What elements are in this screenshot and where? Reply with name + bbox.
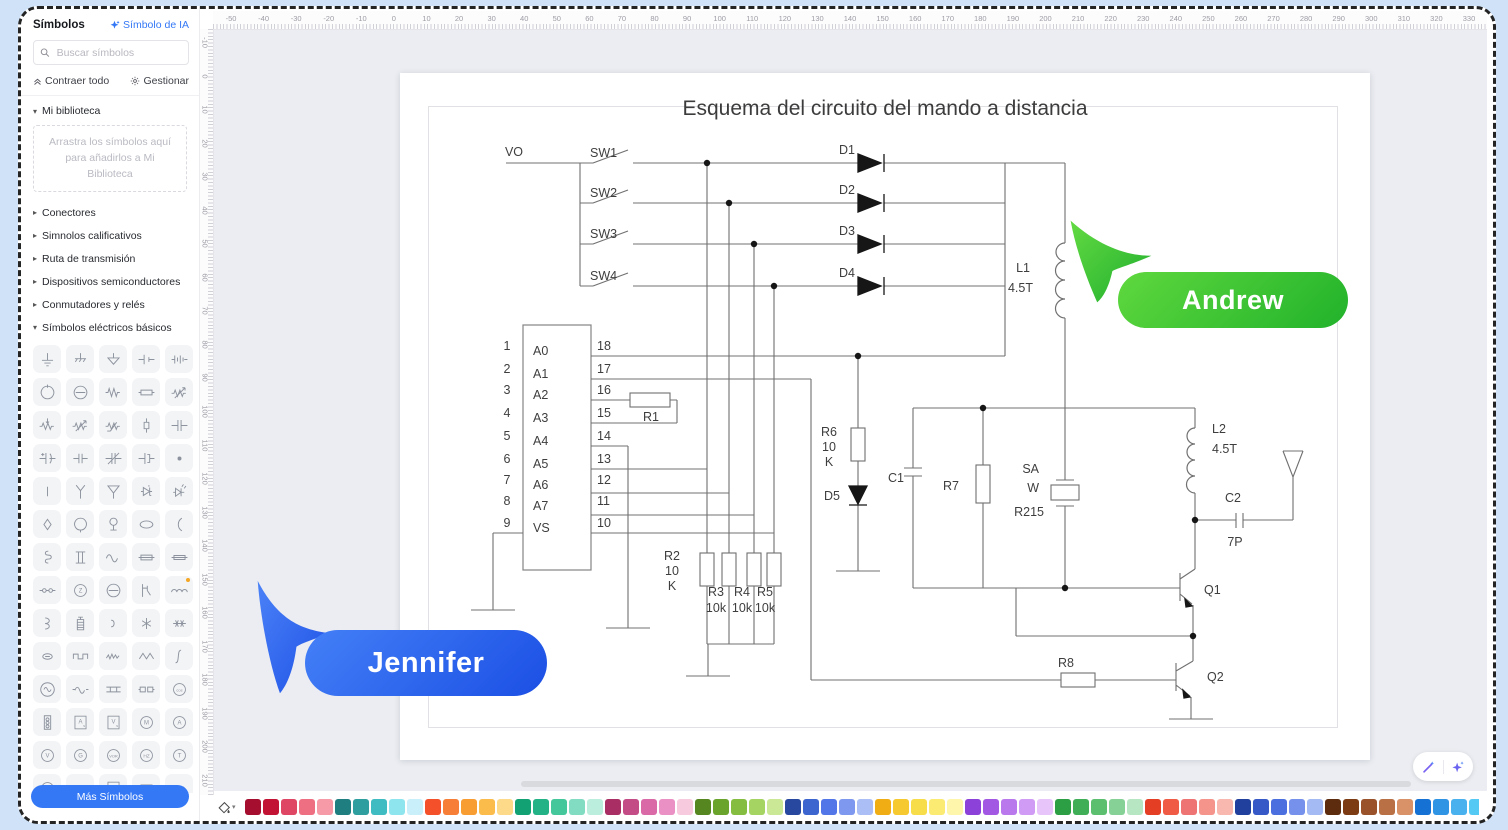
- symbol-oval-terminal[interactable]: [132, 510, 160, 538]
- color-swatch[interactable]: [1073, 799, 1089, 815]
- caret-right-icon: ▸: [33, 231, 37, 240]
- color-swatch[interactable]: [947, 799, 963, 815]
- panel-toolbar: Contraer todo Gestionar: [21, 65, 199, 96]
- symbol-cell[interactable]: [132, 345, 160, 373]
- symbol-node-source[interactable]: [66, 378, 94, 406]
- svg-text:10k: 10k: [706, 601, 727, 615]
- symbol-contact-hook[interactable]: [99, 609, 127, 637]
- svg-text:VO: VO: [505, 145, 523, 159]
- color-swatch[interactable]: [893, 799, 909, 815]
- ruler-label: 300: [1365, 14, 1378, 23]
- symbol-chassis-ground[interactable]: [66, 345, 94, 373]
- ruler-label: 30: [487, 14, 495, 23]
- color-swatch[interactable]: [1199, 799, 1215, 815]
- symbol-rheostat[interactable]: [66, 411, 94, 439]
- oval-dash-icon: [38, 647, 57, 666]
- color-swatch[interactable]: [461, 799, 477, 815]
- ruler-label: 330: [1463, 14, 1476, 23]
- lamp-icon: [71, 515, 90, 534]
- vertical-ruler: -100102030405060708090100110120130140150…: [199, 29, 214, 795]
- chassis-ground-icon: [71, 350, 90, 369]
- symbol-coupler[interactable]: [33, 576, 61, 604]
- color-swatch[interactable]: [839, 799, 855, 815]
- ruler-label: -50: [226, 14, 237, 23]
- frequency-meter-icon: HZ: [137, 746, 156, 765]
- symbol-volt-second-box[interactable]: Vs: [99, 708, 127, 736]
- symbol-traffic-signal[interactable]: [33, 708, 61, 736]
- color-swatch[interactable]: [803, 799, 819, 815]
- symbol-impedance[interactable]: Z: [66, 576, 94, 604]
- svg-text:SW2: SW2: [590, 186, 617, 200]
- color-swatch[interactable]: [317, 799, 333, 815]
- ruler-label: 150: [876, 14, 889, 23]
- resistor-icon: [104, 383, 123, 402]
- ai-symbol-label: Símbolo de IA: [123, 19, 189, 31]
- color-swatch[interactable]: [1163, 799, 1179, 815]
- color-swatch[interactable]: [281, 799, 297, 815]
- symbol-transformer-core[interactable]: [66, 543, 94, 571]
- symbol-antenna[interactable]: [66, 477, 94, 505]
- collapse-all-label: Contraer todo: [45, 75, 109, 87]
- manage-button[interactable]: Gestionar: [130, 75, 189, 87]
- sine-wave-icon: [71, 680, 90, 699]
- svg-text:R1: R1: [643, 410, 659, 424]
- noise-wave-icon: [104, 647, 123, 666]
- ai-sparkle-button[interactable]: [1451, 760, 1465, 774]
- svg-text:cos: cos: [176, 687, 182, 692]
- category-my-library[interactable]: ▾ Mi biblioteca: [21, 96, 199, 120]
- color-swatch[interactable]: [1361, 799, 1377, 815]
- color-swatch[interactable]: [605, 799, 621, 815]
- symbol-ammeter[interactable]: A: [165, 708, 193, 736]
- svg-text:Z: Z: [78, 588, 82, 594]
- svg-text:12: 12: [597, 473, 611, 487]
- resistor-r1: [630, 393, 670, 407]
- resistor-r2: [700, 553, 714, 586]
- ruler-label: 10: [201, 103, 210, 117]
- ruler-label: 60: [201, 270, 210, 284]
- symbol-battery-stack[interactable]: [66, 609, 94, 637]
- svg-text:7: 7: [504, 473, 511, 487]
- pulse-wave-icon: [71, 647, 90, 666]
- ruler-label: 110: [201, 438, 210, 452]
- symbol-pulse-wave[interactable]: [66, 642, 94, 670]
- svg-text:2: 2: [504, 362, 511, 376]
- symbol-coil-hook[interactable]: [33, 543, 61, 571]
- diode-d3: [858, 235, 881, 253]
- svg-text:A4: A4: [533, 434, 548, 448]
- color-swatch[interactable]: [245, 799, 261, 815]
- crossing-icon: [137, 614, 156, 633]
- svg-text:VOR: VOR: [109, 753, 118, 758]
- symbol-junction-dot[interactable]: [165, 444, 193, 472]
- svg-text:G: G: [78, 753, 83, 759]
- ai-symbol-button[interactable]: Símbolo de IA: [109, 19, 189, 31]
- symbol-grid: ZcosAsVsMAVGVORHZT–&: [21, 339, 199, 793]
- svg-text:10: 10: [597, 516, 611, 530]
- svg-text:R5: R5: [757, 585, 773, 599]
- symbol-ac-source[interactable]: [33, 675, 61, 703]
- integral-icon: [170, 647, 189, 666]
- color-swatch[interactable]: [479, 799, 495, 815]
- polarized-capacitor-icon: [38, 449, 57, 468]
- antenna-icon: [71, 482, 90, 501]
- search-icon: [40, 47, 50, 58]
- multi-crossing-icon: [170, 614, 189, 633]
- symbol-terminal[interactable]: [33, 477, 61, 505]
- svg-text:R7: R7: [943, 479, 959, 493]
- symbol-signal-ground[interactable]: [99, 345, 127, 373]
- symbol-resistor-box[interactable]: [132, 378, 160, 406]
- color-swatch[interactable]: [1451, 799, 1467, 815]
- triangle-antenna-icon: [104, 482, 123, 501]
- ruler-label: 40: [201, 203, 210, 217]
- symbol-sawtooth-wave[interactable]: [132, 642, 160, 670]
- color-swatch[interactable]: [785, 799, 801, 815]
- ruler-label: 100: [713, 14, 726, 23]
- symbol-battery[interactable]: [165, 345, 193, 373]
- svg-text:K: K: [825, 455, 834, 469]
- symbol-busbar[interactable]: [99, 675, 127, 703]
- symbol-electrolytic-capacitor[interactable]: [132, 444, 160, 472]
- schematic-labels: VO SW1 SW2 SW3 SW4 D1 D2 D3 D4 1 2 3 4 5…: [504, 143, 1243, 684]
- double-capsule-icon: [137, 680, 156, 699]
- symbols-panel: Símbolos Símbolo de IA Contraer tod: [21, 9, 200, 821]
- svg-text:9: 9: [504, 516, 511, 530]
- ruler-label: 200: [201, 740, 210, 754]
- ruler-label: 140: [201, 539, 210, 553]
- color-swatch[interactable]: [1397, 799, 1413, 815]
- color-swatch[interactable]: [695, 799, 711, 815]
- svg-text:SA: SA: [1022, 462, 1039, 476]
- symbol-voltmeter[interactable]: V: [33, 741, 61, 769]
- symbol-sine-wave[interactable]: [66, 675, 94, 703]
- symbol-integral[interactable]: [165, 642, 193, 670]
- symbol-indicator-lamp[interactable]: [99, 510, 127, 538]
- svg-text:10k: 10k: [755, 601, 776, 615]
- earth-ground-icon: [38, 350, 57, 369]
- svg-text:11: 11: [597, 494, 610, 508]
- category-conmutadores-y-relés[interactable]: ▸Conmutadores y relés: [21, 293, 199, 316]
- color-swatch[interactable]: [1109, 799, 1125, 815]
- svg-text:SW3: SW3: [590, 227, 617, 241]
- crystal-body: [1051, 485, 1079, 500]
- color-swatch[interactable]: [407, 799, 423, 815]
- diodes[interactable]: [849, 154, 1192, 698]
- caret-right-icon: ▸: [33, 300, 37, 309]
- diode-d5: [849, 486, 867, 504]
- category-ruta-de-transmisión[interactable]: ▸Ruta de transmisión: [21, 247, 199, 270]
- svg-text:R4: R4: [734, 585, 750, 599]
- color-swatch[interactable]: [1379, 799, 1395, 815]
- symbol-fixed-capacitor[interactable]: [66, 444, 94, 472]
- ruler-label: 70: [201, 304, 210, 318]
- fill-color-button[interactable]: ▾: [217, 800, 243, 814]
- symbol-lamp[interactable]: [66, 510, 94, 538]
- color-swatch[interactable]: [1001, 799, 1017, 815]
- svg-text:6: 6: [504, 452, 511, 466]
- color-swatch[interactable]: [1289, 799, 1305, 815]
- fuse-icon: [137, 548, 156, 567]
- svg-text:4.5T: 4.5T: [1212, 442, 1237, 456]
- symbol-oval-dash[interactable]: [33, 642, 61, 670]
- color-swatch[interactable]: [1127, 799, 1143, 815]
- color-swatch[interactable]: [1055, 799, 1071, 815]
- color-swatch[interactable]: [749, 799, 765, 815]
- svg-text:4: 4: [504, 406, 511, 420]
- sparkle-icon: [109, 20, 120, 31]
- svg-text:R215: R215: [1014, 505, 1044, 519]
- color-swatch[interactable]: [1181, 799, 1197, 815]
- ampere-second-box-icon: As: [71, 713, 90, 732]
- symbol-inductor[interactable]: [165, 576, 193, 604]
- caret-down-icon: ▾: [33, 323, 37, 332]
- resistor-r8: [1061, 673, 1095, 687]
- ruler-label: 120: [201, 472, 210, 486]
- svg-text:K: K: [668, 579, 677, 593]
- resistor-r7: [976, 465, 990, 503]
- ruler-label: 30: [201, 170, 210, 184]
- ruler-label: 50: [201, 237, 210, 251]
- color-swatch[interactable]: [983, 799, 999, 815]
- inductor-l2: [1187, 428, 1196, 493]
- symbol-search[interactable]: [33, 40, 189, 65]
- symbol-crossing[interactable]: [132, 609, 160, 637]
- symbol-frequency-meter[interactable]: HZ: [132, 741, 160, 769]
- color-swatch[interactable]: [1091, 799, 1107, 815]
- symbol-polarized-capacitor[interactable]: [33, 444, 61, 472]
- color-swatch[interactable]: [713, 799, 729, 815]
- svg-text:D3: D3: [839, 224, 855, 238]
- symbol-led[interactable]: [165, 477, 193, 505]
- junction-dot-icon: [170, 449, 189, 468]
- color-swatch[interactable]: [497, 799, 513, 815]
- cos-phi-meter-icon: cos: [170, 680, 189, 699]
- svg-text:4.5T: 4.5T: [1008, 281, 1033, 295]
- svg-text:A2: A2: [533, 388, 548, 402]
- color-swatch[interactable]: [1253, 799, 1269, 815]
- resistor-r4: [747, 553, 761, 586]
- category-label: Conmutadores y relés: [42, 299, 145, 311]
- color-swatch[interactable]: [929, 799, 945, 815]
- ruler-label: 80: [201, 337, 210, 351]
- color-swatch[interactable]: [1145, 799, 1161, 815]
- symbol-temperature-meter[interactable]: T: [165, 741, 193, 769]
- ruler-label: 170: [201, 639, 210, 653]
- color-swatch[interactable]: [1037, 799, 1053, 815]
- coil-hook-icon: [38, 548, 57, 567]
- color-swatch[interactable]: [425, 799, 441, 815]
- color-swatch[interactable]: [551, 799, 567, 815]
- color-swatch[interactable]: [857, 799, 873, 815]
- color-swatch[interactable]: [677, 799, 693, 815]
- color-swatch[interactable]: [731, 799, 747, 815]
- ruler-label: 210: [201, 774, 210, 788]
- symbol-half-winding[interactable]: [33, 609, 61, 637]
- cell-icon: [137, 350, 156, 369]
- ruler-label: 180: [974, 14, 987, 23]
- ruler-label: -20: [323, 14, 334, 23]
- collapse-all-button[interactable]: Contraer todo: [33, 75, 109, 87]
- ac-source-icon: [38, 680, 57, 699]
- color-swatch[interactable]: [443, 799, 459, 815]
- symbol-vor-meter[interactable]: VOR: [99, 741, 127, 769]
- gear-icon: [130, 76, 140, 86]
- resistors[interactable]: [630, 393, 1095, 687]
- ruler-label: 310: [1398, 14, 1411, 23]
- symbol-ampere-second-box[interactable]: As: [66, 708, 94, 736]
- ruler-label: 190: [201, 706, 210, 720]
- svg-text:M: M: [144, 720, 149, 726]
- symbol-surge-arrester[interactable]: [132, 411, 160, 439]
- color-swatch[interactable]: [821, 799, 837, 815]
- symbol-fuse[interactable]: [132, 543, 160, 571]
- symbol-fuse-holder[interactable]: [165, 543, 193, 571]
- ruler-label: 160: [201, 606, 210, 620]
- color-swatch[interactable]: [1343, 799, 1359, 815]
- diode-d2: [858, 194, 881, 212]
- color-swatch[interactable]: [299, 799, 315, 815]
- ammeter-icon: A: [170, 713, 189, 732]
- color-swatch[interactable]: [1217, 799, 1233, 815]
- symbol-capacitor[interactable]: [165, 411, 193, 439]
- swatch-row: [245, 799, 1479, 815]
- symbol-potentiometer[interactable]: [33, 411, 61, 439]
- svg-text:C1: C1: [888, 471, 904, 485]
- svg-text:5: 5: [504, 429, 511, 443]
- symbol-cos-phi-meter[interactable]: cos: [165, 675, 193, 703]
- svg-text:R3: R3: [708, 585, 724, 599]
- color-swatch[interactable]: [767, 799, 783, 815]
- ruler-label: 220: [1104, 14, 1117, 23]
- color-swatch[interactable]: [1325, 799, 1341, 815]
- symbol-motor[interactable]: M: [132, 708, 160, 736]
- color-swatch[interactable]: [1307, 799, 1323, 815]
- ruler-label: 210: [1072, 14, 1085, 23]
- ruler-label: 90: [201, 371, 210, 385]
- relay-contact-icon: [137, 581, 156, 600]
- color-swatch[interactable]: [1469, 799, 1479, 815]
- led-icon: [170, 482, 189, 501]
- ruler-label: 70: [618, 14, 626, 23]
- color-swatch[interactable]: [1415, 799, 1431, 815]
- color-swatch[interactable]: [569, 799, 585, 815]
- manage-label: Gestionar: [143, 75, 189, 87]
- svg-text:17: 17: [597, 362, 611, 376]
- surge-arrester-icon: [137, 416, 156, 435]
- svg-text:D5: D5: [824, 489, 840, 503]
- rheostat-icon: [71, 416, 90, 435]
- symbol-resistor[interactable]: [99, 378, 127, 406]
- color-swatch[interactable]: [533, 799, 549, 815]
- color-swatch[interactable]: [1019, 799, 1035, 815]
- ruler-label: 190: [1007, 14, 1020, 23]
- svg-text:C2: C2: [1225, 491, 1241, 505]
- color-swatch[interactable]: [389, 799, 405, 815]
- color-swatch[interactable]: [1433, 799, 1449, 815]
- magic-wand-icon: [1421, 760, 1435, 774]
- color-swatch[interactable]: [1271, 799, 1287, 815]
- color-swatch[interactable]: [515, 799, 531, 815]
- symbol-relay-contact[interactable]: [132, 576, 160, 604]
- svg-text:s: s: [116, 724, 118, 728]
- half-winding-icon: [38, 614, 57, 633]
- category-simnolos-calificativos[interactable]: ▸Simnolos calificativos: [21, 224, 199, 247]
- symbol-trimmer-capacitor[interactable]: [99, 444, 127, 472]
- more-symbols-button[interactable]: Más Símbolos: [31, 785, 189, 808]
- color-swatch[interactable]: [263, 799, 279, 815]
- symbol-generator[interactable]: G: [66, 741, 94, 769]
- symbol-noise-wave[interactable]: [99, 642, 127, 670]
- category-símbolos-eléctricos-básicos[interactable]: ▾Símbolos eléctricos básicos: [21, 316, 199, 339]
- color-swatch[interactable]: [875, 799, 891, 815]
- battery-icon: [170, 350, 189, 369]
- category-conectores[interactable]: ▸Conectores: [21, 201, 199, 224]
- svg-text:R8: R8: [1058, 656, 1074, 670]
- dc-source-icon: [38, 383, 57, 402]
- symbol-arc-contact[interactable]: [165, 510, 193, 538]
- ruler-label: 280: [1300, 14, 1313, 23]
- symbol-diamond-indicator[interactable]: [33, 510, 61, 538]
- svg-text:L2: L2: [1212, 422, 1226, 436]
- library-dropzone[interactable]: Arrastra los símbolos aquí para añadirlo…: [33, 125, 187, 192]
- color-swatch[interactable]: [353, 799, 369, 815]
- symbol-double-capsule[interactable]: [132, 675, 160, 703]
- color-swatch[interactable]: [659, 799, 675, 815]
- magic-wand-button[interactable]: [1421, 760, 1435, 774]
- color-swatch[interactable]: [623, 799, 639, 815]
- symbol-earth-ground[interactable]: [33, 345, 61, 373]
- dropdown-arrow-icon: ▾: [232, 803, 236, 811]
- ruler-label: 270: [1267, 14, 1280, 23]
- symbol-multi-crossing[interactable]: [165, 609, 193, 637]
- color-swatch[interactable]: [911, 799, 927, 815]
- search-input[interactable]: [55, 46, 182, 60]
- color-swatch[interactable]: [1235, 799, 1251, 815]
- color-swatch[interactable]: [965, 799, 981, 815]
- symbol-dc-source[interactable]: [33, 378, 61, 406]
- color-swatch[interactable]: [587, 799, 603, 815]
- symbol-zener-diode[interactable]: [132, 477, 160, 505]
- svg-text:A0: A0: [533, 344, 548, 358]
- q2-emitter-arrow: [1183, 690, 1190, 698]
- symbol-node-circle[interactable]: [99, 576, 127, 604]
- symbol-ac-wave[interactable]: [99, 543, 127, 571]
- ruler-label: 80: [650, 14, 658, 23]
- ruler-label: 0: [201, 69, 210, 83]
- category-dispositivos-semiconductores[interactable]: ▸Dispositivos semiconductores: [21, 270, 199, 293]
- horizontal-scrollbar[interactable]: [521, 781, 1411, 787]
- trimmer-capacitor-icon: [104, 449, 123, 468]
- divider: [1443, 760, 1444, 774]
- ruler-label: 260: [1235, 14, 1248, 23]
- symbol-thermistor[interactable]: [99, 411, 127, 439]
- ruler-label: -40: [258, 14, 269, 23]
- screenshot-root: Símbolos Símbolo de IA Contraer tod: [0, 0, 1508, 830]
- ac-wave-icon: [104, 548, 123, 567]
- color-swatch[interactable]: [335, 799, 351, 815]
- impedance-icon: Z: [71, 581, 90, 600]
- sawtooth-wave-icon: [137, 647, 156, 666]
- ruler-label: -10: [356, 14, 367, 23]
- collaborator-label-jennifer: Jennifer: [305, 630, 547, 696]
- collaborator-label-andrew: Andrew: [1118, 272, 1348, 328]
- symbol-varistor[interactable]: [165, 378, 193, 406]
- drawing-canvas[interactable]: Esquema del circuito del mando a distanc…: [213, 29, 1487, 791]
- color-swatch[interactable]: [641, 799, 657, 815]
- color-swatch[interactable]: [371, 799, 387, 815]
- symbol-triangle-antenna[interactable]: [99, 477, 127, 505]
